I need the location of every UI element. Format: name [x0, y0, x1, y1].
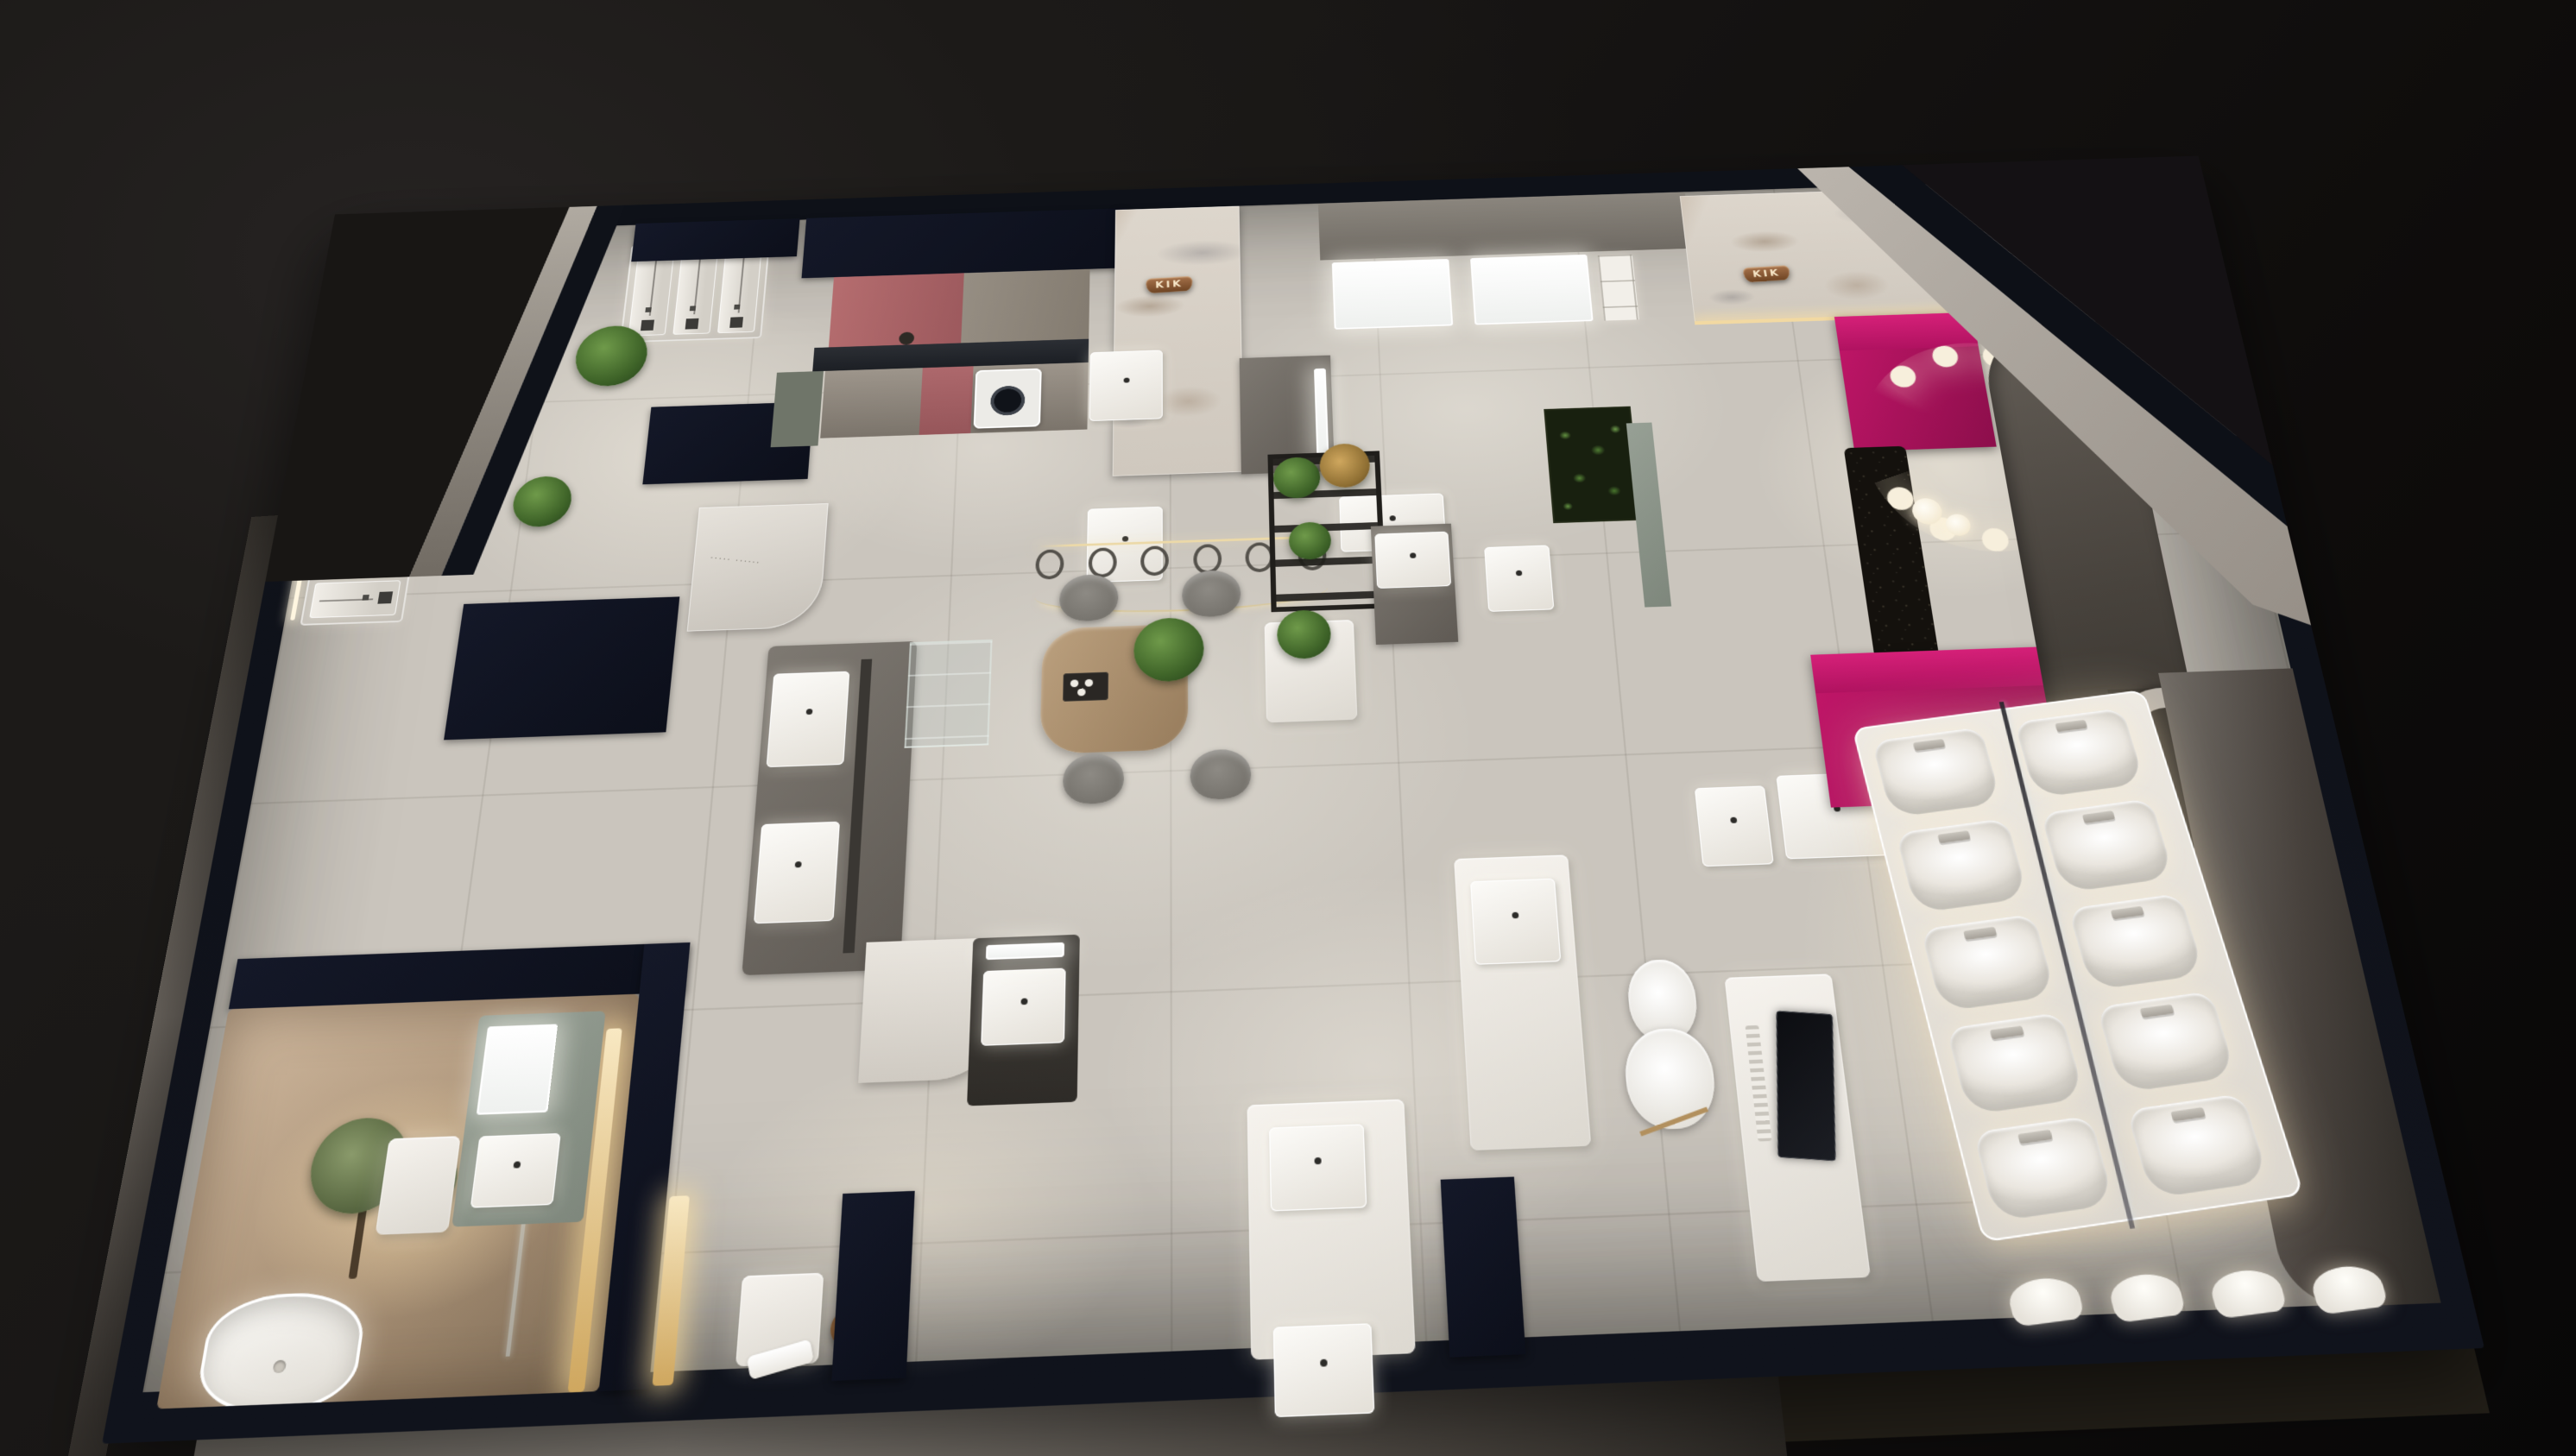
rose-pink-wall-panel — [829, 273, 964, 347]
pink-cabinet-front — [919, 366, 974, 435]
meeting-chair — [1063, 753, 1124, 804]
laundry-cabinet-run — [820, 362, 1089, 438]
wall-stub — [1441, 1176, 1526, 1357]
meeting-chair — [1190, 748, 1252, 800]
led-mirror-cabinet — [1332, 258, 1453, 329]
taupe-wall-panel — [961, 268, 1089, 343]
wall-hung-basin — [1089, 350, 1163, 421]
shower-fixture-panel — [324, 498, 414, 534]
display-toilet — [1872, 727, 2002, 818]
display-toilet — [1973, 1115, 2115, 1221]
soffit-band — [631, 218, 799, 262]
display-toilet — [2041, 798, 2175, 892]
basin-display-island — [1454, 854, 1591, 1150]
double-vanity-island — [742, 640, 917, 974]
led-mirror-strip — [986, 942, 1064, 959]
display-toilet — [2097, 991, 2237, 1093]
vanity-mirror-units — [1332, 254, 1594, 329]
shower-fixture-panel — [717, 247, 762, 333]
showroom-floorplan: ····· ······ KIK — [102, 155, 2484, 1443]
shower-fixture-panel — [309, 580, 401, 618]
wall-hung-basin — [1695, 785, 1774, 867]
island-basin — [1269, 1124, 1367, 1211]
vanity-basin — [470, 1132, 561, 1207]
led-mirror — [1314, 368, 1329, 456]
vanity-basin — [1374, 531, 1451, 588]
led-mirror — [477, 1024, 558, 1114]
olive-tree-trunk — [349, 1207, 368, 1278]
vanity-cabinet — [1371, 523, 1458, 644]
basin-display-island — [1247, 1099, 1416, 1359]
shower-fixture-panel — [628, 249, 675, 336]
display-toilet-front — [2005, 1274, 2086, 1327]
dark-counter-vanity — [967, 934, 1080, 1106]
pendant-ring — [1193, 544, 1222, 574]
vignette-bathtub — [193, 1290, 369, 1409]
island-basin — [754, 821, 840, 923]
wall-stub — [831, 1190, 914, 1380]
console-vent — [1746, 1024, 1772, 1141]
shower-fixture-panel — [352, 344, 439, 377]
pendant-ring — [1088, 547, 1116, 578]
meeting-chair — [1182, 570, 1241, 618]
shower-fixture-panel — [331, 458, 420, 494]
display-wall-slab — [444, 596, 679, 740]
brand-sign-kik-right: KIK — [1742, 265, 1790, 282]
open-shelf-unit — [1598, 254, 1639, 320]
vanity-basin — [1484, 545, 1554, 611]
shower-fixture-panel — [672, 249, 718, 335]
vanity-back-wall — [1318, 192, 1692, 260]
white-desk-chair — [1615, 958, 1721, 1138]
display-toilet — [2126, 1093, 2270, 1198]
pendant-ring — [1140, 545, 1169, 577]
vanity-basin — [981, 968, 1066, 1045]
marble-feature-column: KIK — [1113, 205, 1244, 476]
display-toilet — [1947, 1012, 2086, 1115]
soffit-band — [801, 208, 1127, 278]
meeting-chairs-top — [1059, 570, 1241, 622]
shower-fixture-panel — [338, 419, 426, 455]
washing-machine — [974, 368, 1042, 428]
display-toilet-front — [2106, 1270, 2187, 1323]
pendant-ring — [1035, 549, 1064, 580]
led-mirror-cabinet — [1470, 254, 1594, 325]
island-basin — [1470, 878, 1561, 964]
meeting-chairs-bottom — [1063, 748, 1252, 804]
sage-tall-cabinet — [771, 370, 824, 446]
meeting-chair — [1059, 573, 1119, 621]
display-toilet — [1896, 818, 2029, 913]
small-vanity-unit — [376, 1136, 461, 1235]
display-toilet — [2068, 892, 2206, 990]
display-toilet-front — [2207, 1266, 2288, 1319]
night-void-background: ····· ······ KIK — [0, 0, 2576, 1456]
partition-micro-text: ····· ······ — [710, 554, 762, 567]
display-toilet — [1921, 913, 2056, 1012]
island-basin — [767, 671, 850, 766]
tv-screen — [1777, 1011, 1836, 1161]
island-basin — [1273, 1323, 1375, 1417]
chair-seat — [1622, 1027, 1720, 1131]
brand-sign-kik-left: KIK — [1146, 275, 1192, 293]
display-toilet-front — [2308, 1262, 2390, 1314]
display-toilet — [2014, 708, 2145, 798]
shower-fixture-panel — [345, 381, 432, 415]
serving-tray — [1063, 671, 1108, 701]
shower-fixture-panel — [317, 539, 407, 576]
glass-shelf-unit — [904, 639, 992, 747]
